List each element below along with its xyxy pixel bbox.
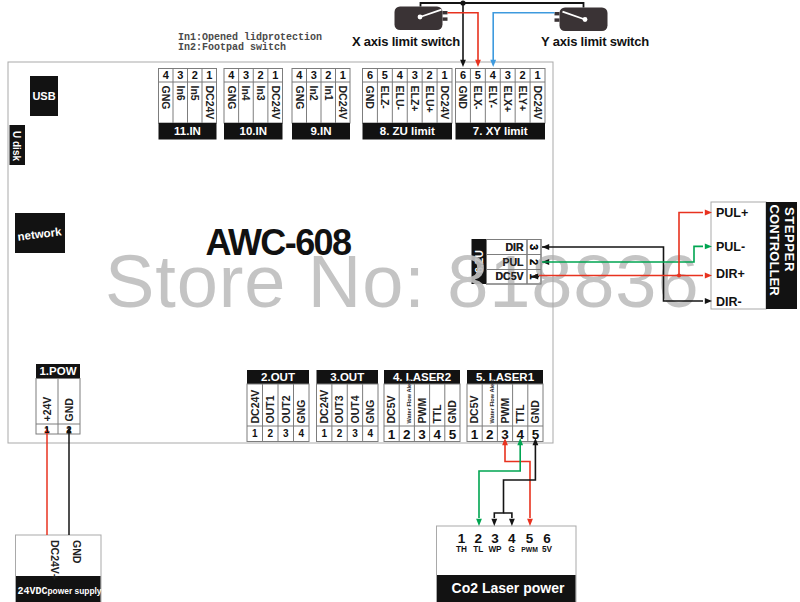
svg-text:DC5V: DC5V	[495, 270, 523, 282]
svg-text:3.OUT: 3.OUT	[330, 371, 364, 383]
svg-text:4: 4	[163, 69, 170, 81]
svg-text:PWM: PWM	[499, 398, 511, 424]
svg-text:1: 1	[534, 69, 540, 81]
svg-text:3: 3	[491, 531, 499, 546]
svg-text:2: 2	[474, 531, 482, 546]
svg-text:ELY-: ELY-	[487, 86, 499, 109]
svg-text:PWM: PWM	[416, 398, 428, 424]
svg-text:GND: GND	[364, 86, 376, 110]
svg-text:2: 2	[528, 259, 540, 265]
svg-text:DC24V: DC24V	[532, 86, 544, 120]
svg-text:4: 4	[397, 69, 404, 81]
svg-text:2: 2	[192, 69, 198, 81]
svg-text:DC24V: DC24V	[337, 86, 349, 120]
svg-text:3: 3	[412, 69, 418, 81]
svg-text:5: 5	[449, 427, 457, 442]
svg-text:GND: GND	[446, 400, 458, 424]
svg-text:24VDC: 24VDC	[18, 586, 48, 597]
svg-text:In6: In6	[175, 86, 187, 101]
svg-text:3: 3	[528, 244, 540, 250]
svg-text:7. XY limit: 7. XY limit	[473, 125, 528, 137]
svg-text:DC24V: DC24V	[204, 86, 216, 120]
svg-text:5: 5	[526, 531, 534, 546]
svg-text:ELU-: ELU-	[394, 86, 406, 111]
svg-text:DC24V: DC24V	[439, 86, 451, 120]
svg-text:2.OUT: 2.OUT	[261, 371, 295, 383]
svg-text:4: 4	[298, 428, 304, 439]
svg-text:2: 2	[325, 69, 331, 81]
svg-text:GND: GND	[71, 540, 83, 564]
svg-text:2: 2	[520, 69, 526, 81]
svg-text:TH: TH	[456, 545, 467, 554]
svg-text:2: 2	[427, 69, 433, 81]
svg-text:X axis limit switch: X axis limit switch	[352, 34, 460, 49]
svg-text:1: 1	[458, 531, 466, 546]
svg-text:4: 4	[490, 69, 497, 81]
svg-text:ELX-: ELX-	[472, 86, 484, 110]
svg-text:6: 6	[543, 531, 551, 546]
svg-text:DC24V: DC24V	[270, 86, 282, 120]
svg-text:10.IN: 10.IN	[240, 125, 268, 137]
svg-text:4: 4	[433, 427, 441, 442]
svg-text:3: 3	[243, 69, 249, 81]
svg-text:4: 4	[296, 69, 303, 81]
svg-text:5: 5	[382, 69, 388, 81]
svg-text:OUT3: OUT3	[333, 395, 345, 423]
svg-text:OUT1: OUT1	[264, 395, 276, 423]
svg-text:In3: In3	[255, 86, 267, 101]
svg-text:WP: WP	[488, 545, 502, 554]
svg-text:1: 1	[252, 428, 258, 439]
svg-text:3: 3	[418, 427, 426, 442]
svg-text:2: 2	[257, 69, 263, 81]
svg-text:3: 3	[311, 69, 317, 81]
svg-text:4. LASER2: 4. LASER2	[393, 371, 451, 383]
svg-text:1: 1	[44, 424, 50, 435]
svg-text:TTL: TTL	[514, 404, 526, 424]
svg-text:Co2 Laser power: Co2 Laser power	[452, 580, 565, 596]
svg-text:Y axis limit switch: Y axis limit switch	[541, 34, 649, 49]
svg-text:PUL: PUL	[503, 256, 525, 268]
svg-text:1: 1	[340, 69, 346, 81]
svg-text:STEPPER: STEPPER	[782, 207, 797, 272]
svg-text:1: 1	[321, 428, 327, 439]
svg-text:G: G	[509, 545, 515, 554]
svg-text:4: 4	[508, 531, 516, 546]
svg-text:PUL-: PUL-	[716, 240, 745, 254]
svg-text:5. LASER1: 5. LASER1	[476, 371, 535, 383]
svg-text:2: 2	[337, 428, 343, 439]
svg-text:4: 4	[228, 69, 235, 81]
svg-text:GNG: GNG	[160, 86, 172, 110]
svg-text:USB: USB	[32, 90, 55, 102]
svg-text:OUT2: OUT2	[280, 395, 292, 423]
svg-text:5V: 5V	[542, 545, 553, 554]
svg-text:2: 2	[267, 428, 273, 439]
svg-text:DC24V: DC24V	[318, 390, 330, 424]
svg-text:9.IN: 9.IN	[310, 125, 331, 137]
svg-text:4: 4	[368, 428, 374, 439]
svg-text:11.IN: 11.IN	[174, 125, 201, 137]
svg-text:DC5V: DC5V	[385, 395, 397, 423]
svg-text:In2:Footpad switch: In2:Footpad switch	[178, 42, 286, 53]
svg-text:GND: GND	[457, 86, 469, 110]
svg-text:Store No: 818836: Store No: 818836	[105, 240, 699, 323]
svg-text:In5: In5	[189, 86, 201, 101]
svg-text:In1: In1	[323, 86, 335, 101]
svg-text:6: 6	[367, 69, 373, 81]
svg-text:3: 3	[352, 428, 358, 439]
svg-text:GNG: GNG	[226, 86, 238, 110]
svg-text:CONTROLLER: CONTROLLER	[767, 205, 782, 297]
svg-text:1: 1	[471, 427, 479, 442]
svg-text:TTL: TTL	[431, 404, 443, 424]
svg-text:8. ZU limit: 8. ZU limit	[380, 125, 435, 137]
svg-text:DC24V: DC24V	[249, 390, 261, 424]
svg-text:1.POW: 1.POW	[39, 365, 76, 377]
svg-text:2: 2	[403, 427, 411, 442]
svg-text:GNG: GNG	[295, 400, 307, 424]
svg-text:PWM: PWM	[521, 546, 538, 553]
svg-text:DIR-: DIR-	[716, 295, 742, 309]
svg-text:1: 1	[272, 69, 278, 81]
svg-text:1: 1	[206, 69, 212, 81]
svg-text:DC24V+: DC24V+	[49, 540, 61, 580]
svg-text:2: 2	[66, 424, 71, 435]
svg-text:+24V: +24V	[41, 397, 53, 422]
svg-text:2: 2	[486, 427, 494, 442]
svg-text:DC5V: DC5V	[468, 395, 480, 423]
svg-text:ELU+: ELU+	[424, 86, 436, 113]
svg-text:DIR+: DIR+	[716, 267, 745, 281]
svg-text:ELY+: ELY+	[517, 86, 529, 112]
svg-text:1: 1	[388, 427, 396, 442]
svg-text:In2: In2	[308, 86, 320, 101]
svg-text:U disk: U disk	[11, 131, 22, 161]
svg-text:GNG: GNG	[294, 86, 306, 110]
svg-text:GNG: GNG	[364, 400, 376, 424]
svg-text:OUT4: OUT4	[349, 395, 361, 423]
svg-text:ELZ+: ELZ+	[409, 86, 421, 112]
svg-text:DIR: DIR	[505, 241, 524, 253]
svg-text:3: 3	[177, 69, 183, 81]
svg-text:ELX+: ELX+	[502, 86, 514, 113]
svg-text:3: 3	[283, 428, 289, 439]
svg-text:3: 3	[505, 69, 511, 81]
svg-text:In4: In4	[240, 86, 252, 101]
svg-text:ELZ-: ELZ-	[379, 86, 391, 110]
svg-text:5: 5	[475, 69, 481, 81]
svg-text:PUL+: PUL+	[716, 206, 748, 220]
svg-text:6: 6	[460, 69, 466, 81]
svg-text:Water Flow Alert: Water Flow Alert	[406, 380, 412, 424]
svg-text:power supply: power supply	[48, 586, 102, 596]
svg-text:GND: GND	[63, 398, 75, 422]
svg-text:TL: TL	[473, 545, 483, 554]
svg-text:Water Flow Alert: Water Flow Alert	[489, 380, 495, 424]
svg-text:GND: GND	[529, 400, 541, 424]
svg-text:1: 1	[441, 69, 447, 81]
